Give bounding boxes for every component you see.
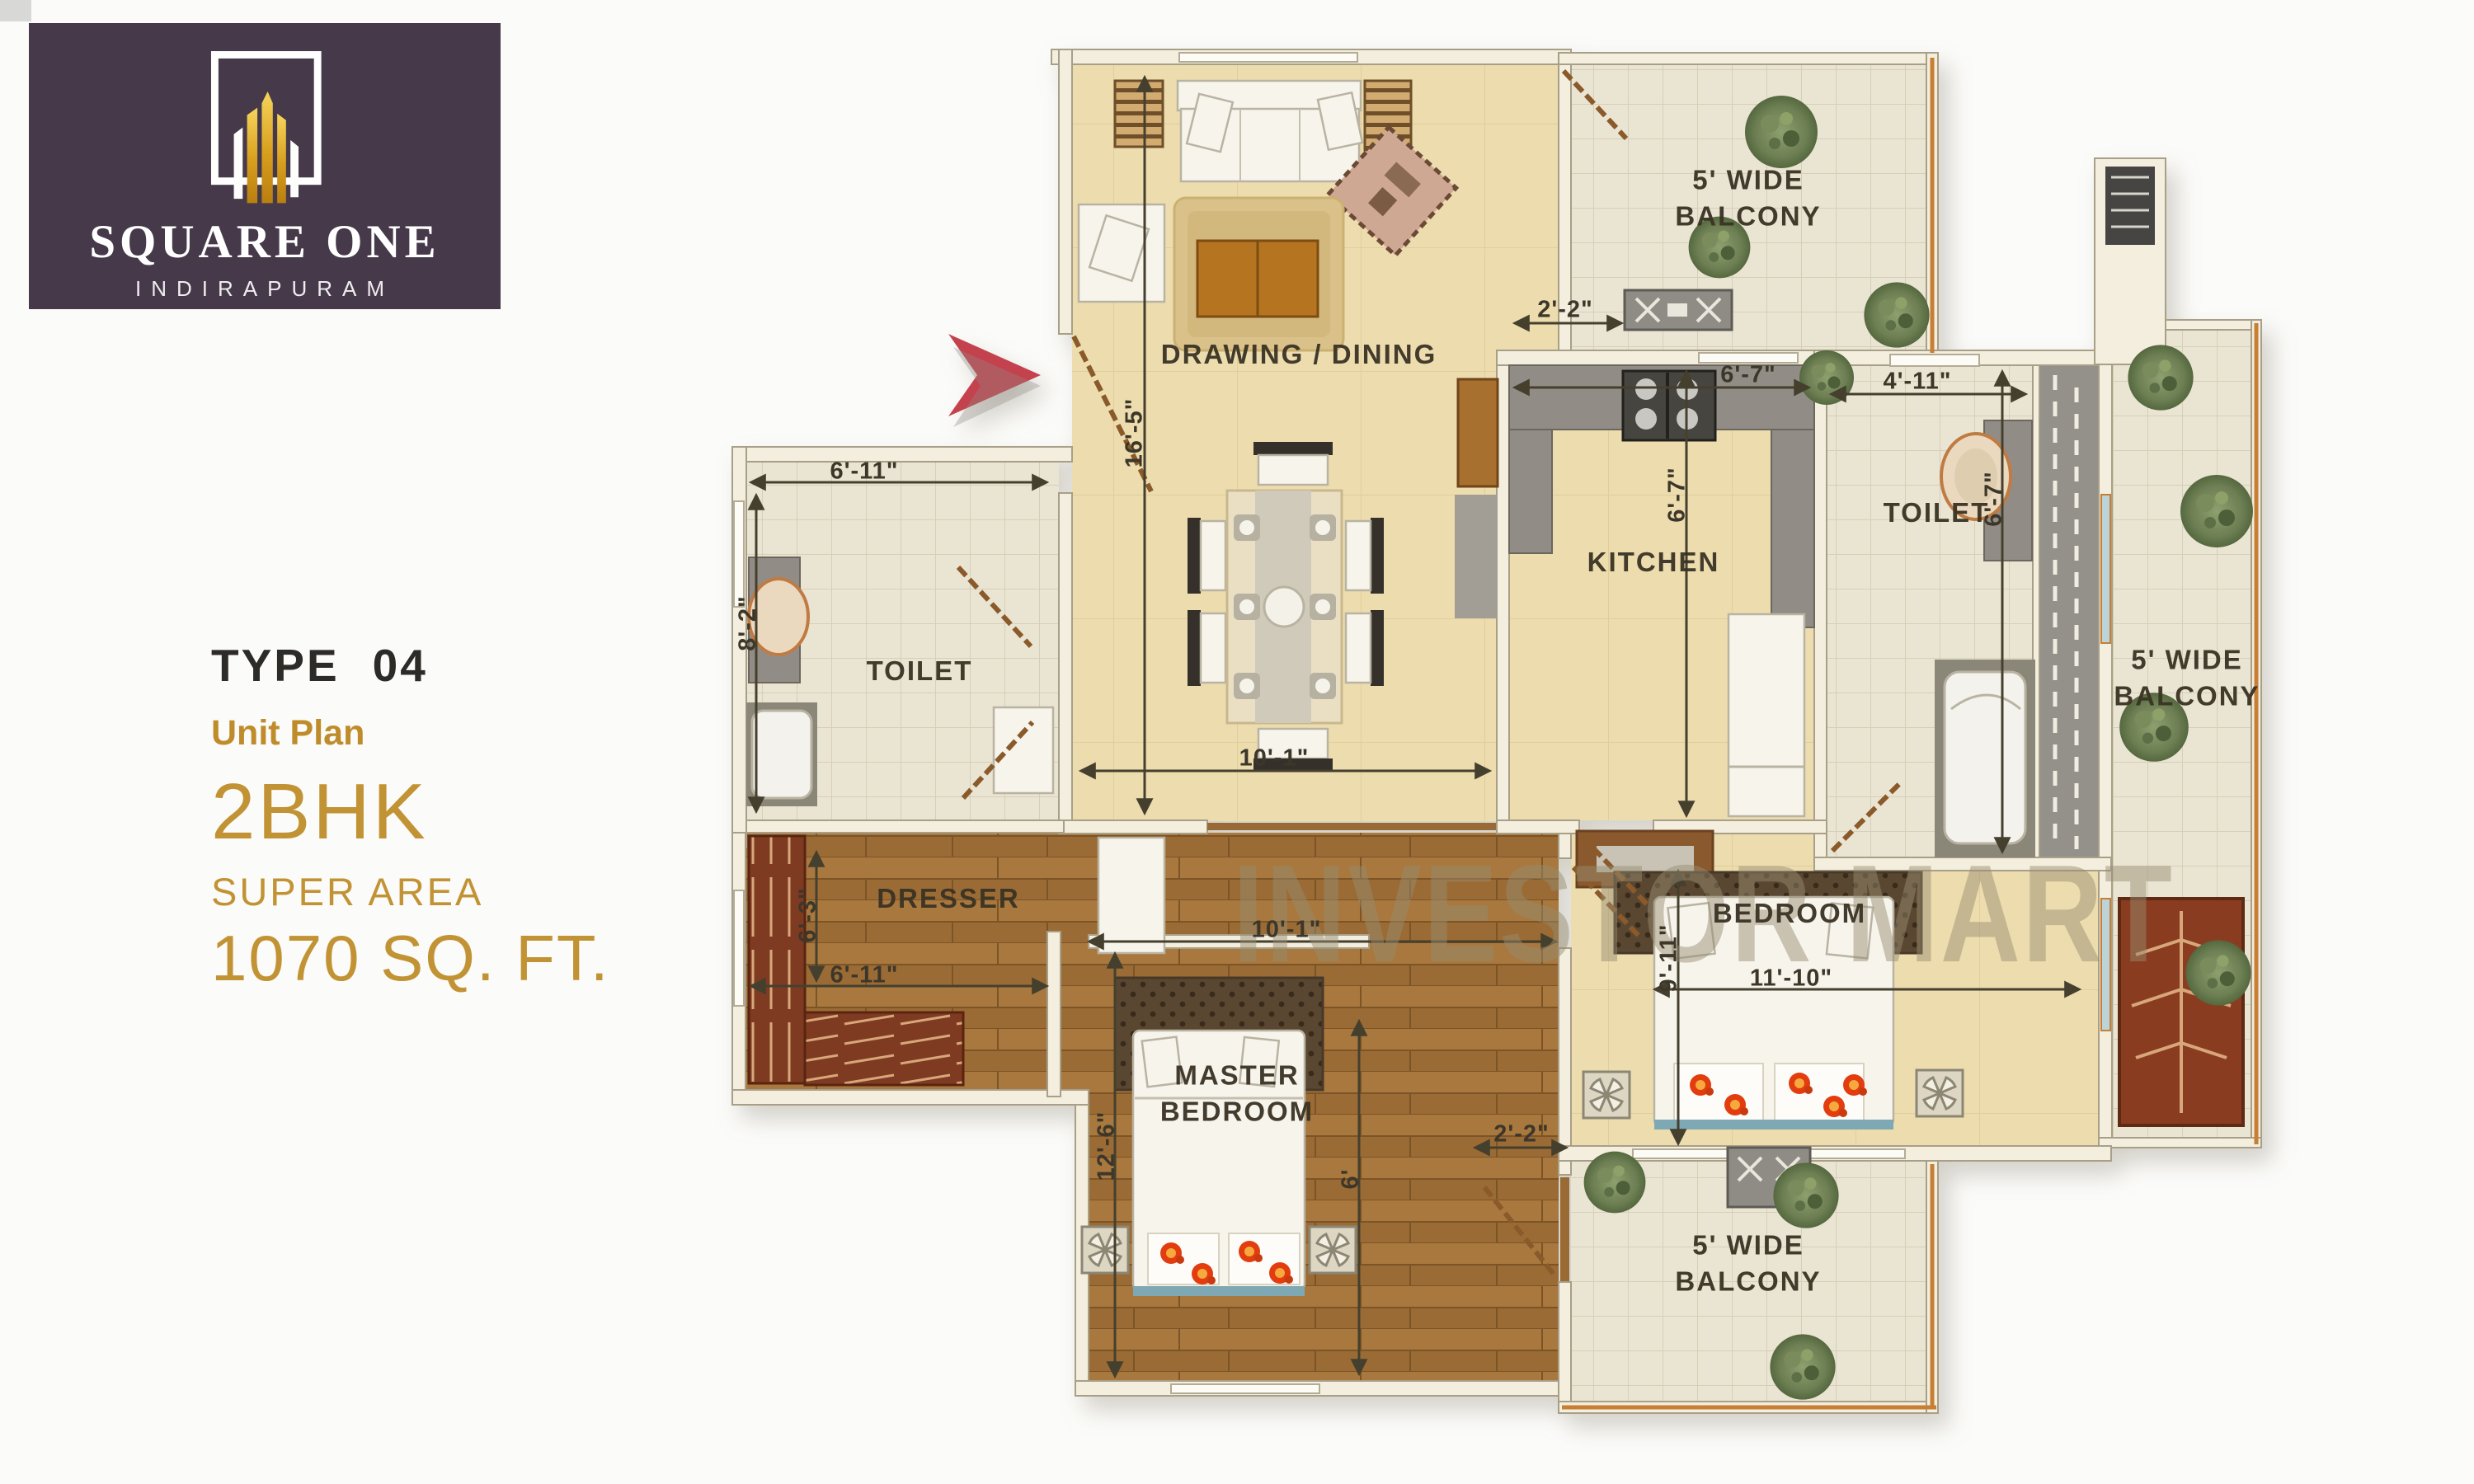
type-label: TYPE — [211, 640, 340, 691]
dim-balcony-gap: 2'-2" — [1493, 1121, 1550, 1148]
room-label-toilet-left: TOILET — [837, 653, 1002, 689]
building-icon — [194, 45, 336, 206]
entry-arrow — [948, 334, 1041, 427]
dim-dining-width: 10'-1" — [1239, 745, 1310, 773]
room-label-balcony-right: 5' WIDE BALCONY — [2096, 641, 2278, 713]
shoe-cabinet — [994, 707, 1053, 793]
unit-info: TYPE04 Unit Plan 2BHK SUPER AREA 1070 SQ… — [211, 639, 610, 996]
dim-bedroom-height: 9'-11" — [1656, 923, 1683, 992]
brand-logo: SQUARE ONE INDIRAPURAM — [29, 23, 501, 309]
configuration: 2BHK — [211, 767, 610, 857]
brand-name: SQUARE ONE — [29, 215, 501, 269]
dim-toilet-left-width: 6'-11" — [830, 458, 898, 486]
dim-drawing-height: 16'-5" — [1122, 398, 1149, 468]
super-area-value: 1070 SQ. FT. — [211, 921, 610, 996]
ac-unit — [1625, 290, 1732, 330]
fan-icon — [1917, 1070, 1963, 1116]
dim-kitchen-height: 6'-7" — [1664, 467, 1691, 523]
room-label-dresser: DRESSER — [849, 881, 1047, 917]
room-label-drawing-dining: DRAWING / DINING — [1126, 336, 1472, 373]
tv-cabinet — [1455, 379, 1498, 618]
hall-cabinet — [1098, 838, 1164, 953]
room-label-kitchen: KITCHEN — [1554, 544, 1752, 580]
coffee-table — [1174, 198, 1343, 350]
dim-master-height: 12'-6" — [1094, 1111, 1121, 1181]
super-area-label: SUPER AREA — [211, 869, 610, 914]
type-title: TYPE04 — [211, 639, 610, 692]
refrigerator — [1729, 614, 1804, 816]
dim-dresser-width: 6'-11" — [830, 962, 898, 989]
dim-dresser-height: 6'-3" — [795, 887, 822, 943]
room-label-bedroom: BEDROOM — [1682, 895, 1897, 932]
dim-toilet-right-width: 4'-11" — [1883, 369, 1951, 396]
fan-icon — [1583, 1072, 1630, 1118]
room-label-balcony-bottom: 5' WIDE BALCONY — [1658, 1227, 1839, 1298]
type-number: 04 — [373, 640, 428, 691]
brand-location: INDIRAPURAM — [29, 276, 501, 302]
dim-kitchen-gap: 2'-2" — [1537, 297, 1593, 324]
dim-toilet-left-height: 8'-2" — [735, 595, 762, 651]
dim-toilet-right-height: 6'-7" — [1981, 471, 2008, 527]
fan-icon — [1082, 1227, 1128, 1273]
room-label-balcony-top: 5' WIDE BALCONY — [1658, 162, 1839, 233]
dim-passage-height: 6' — [1338, 1168, 1365, 1189]
fan-icon — [1310, 1227, 1356, 1273]
dim-kitchen-width: 6'-7" — [1720, 362, 1776, 389]
dim-bedroom-width: 11'-10" — [1750, 965, 1832, 993]
room-label-master-bedroom: MASTER BEDROOM — [1142, 1057, 1332, 1129]
dim-corridor-width: 10'-1" — [1252, 917, 1322, 944]
unit-plan-subtitle: Unit Plan — [211, 713, 610, 754]
